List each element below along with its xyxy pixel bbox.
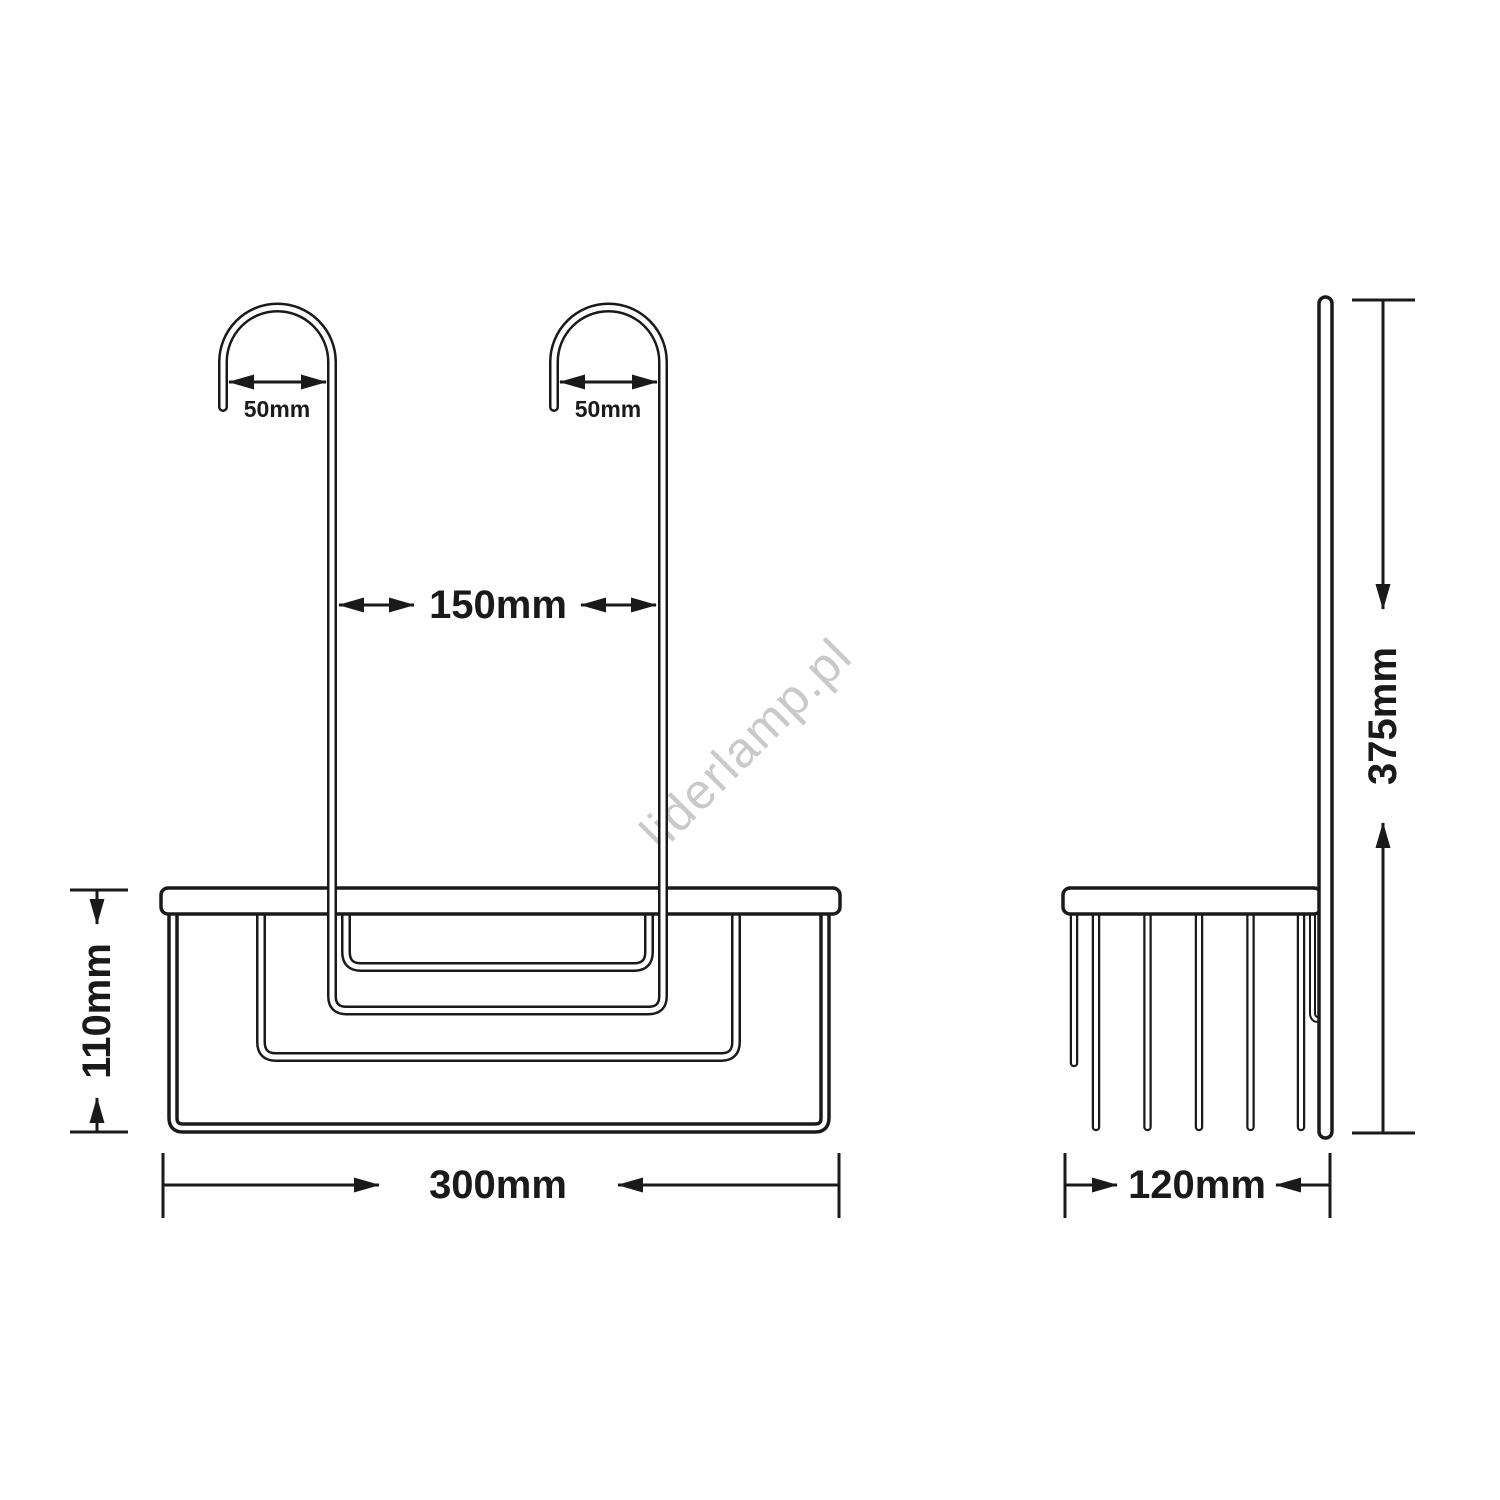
dimension-label: 50mm xyxy=(244,396,310,422)
dimension-label: 50mm xyxy=(575,396,641,422)
dimension-hook-right-width: 50mm xyxy=(560,382,657,422)
dimension-label: 110mm xyxy=(75,943,119,1079)
basket-rim-front xyxy=(161,888,840,914)
dimension-label: 120mm xyxy=(1128,1163,1266,1207)
side-hanging-wires xyxy=(1074,902,1320,1127)
dimension-basket-depth: 120mm xyxy=(1065,1153,1330,1218)
dimension-overall-height: 375mm xyxy=(1352,300,1415,1133)
dimension-hook-spacing: 150mm xyxy=(339,583,656,627)
dimension-basket-height: 110mm xyxy=(70,890,128,1132)
dimension-label: 150mm xyxy=(429,583,567,627)
dimension-basket-width: 300mm xyxy=(163,1153,839,1218)
drawing-canvas: liderlamp.pl xyxy=(0,0,1500,1500)
dimension-hook-left-width: 50mm xyxy=(229,382,326,422)
back-rail-side xyxy=(1319,297,1332,1138)
side-view xyxy=(1063,297,1332,1138)
basket-rim-side xyxy=(1063,888,1321,914)
dimension-label: 375mm xyxy=(1361,647,1405,785)
dimension-label: 300mm xyxy=(429,1163,567,1207)
